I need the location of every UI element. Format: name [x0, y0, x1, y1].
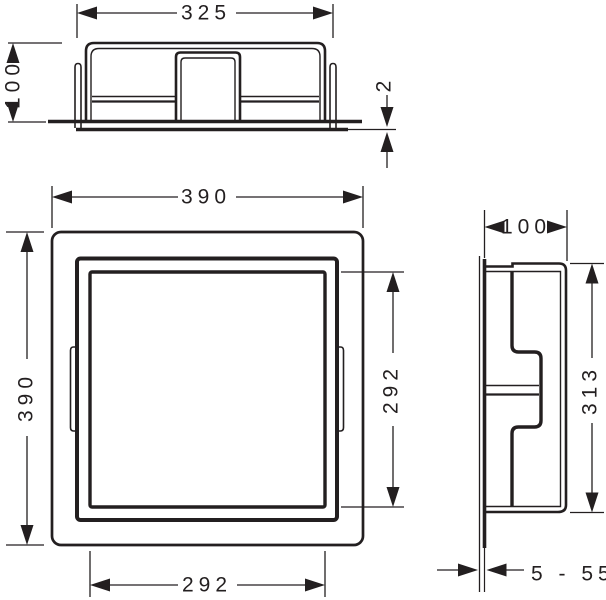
body-outer-outline	[483, 264, 566, 513]
arrow-up-icon	[381, 132, 394, 152]
outer-frame-outline	[52, 232, 363, 545]
body-outer-outline	[86, 43, 325, 121]
inner-frame-outline	[77, 259, 337, 521]
side-view-dim-depth: 100	[485, 210, 568, 261]
side-view-dim-body-height: 313	[570, 264, 604, 513]
front-view-dim-opening-width: 292	[90, 551, 325, 597]
arrow-left-icon	[52, 191, 72, 204]
arrow-down-icon	[586, 493, 599, 513]
front-view-dim-opening-height: 292	[341, 272, 404, 507]
top-view-body	[48, 43, 396, 130]
body-inner-outline	[91, 49, 320, 122]
arrow-left-icon	[77, 7, 97, 20]
dim-label-100: 100	[2, 59, 25, 109]
arrow-right-icon	[343, 191, 363, 204]
arrow-right-icon	[313, 7, 333, 20]
drawing-svg: 325 100	[0, 0, 606, 600]
top-view-dim-depth: 100	[2, 43, 63, 122]
front-view-dim-height: 390	[6, 232, 44, 545]
arrow-down-icon	[381, 107, 394, 127]
front-view: 390 390 292	[6, 186, 404, 598]
dim-label-390-height: 390	[15, 372, 38, 422]
arrow-down-icon	[21, 525, 34, 545]
left-clip	[75, 64, 81, 129]
dim-label-325: 325	[181, 2, 231, 25]
arrow-up-icon	[586, 264, 599, 284]
side-view: 100 313 5 - 55	[437, 210, 606, 592]
interior-step-profile	[512, 272, 541, 507]
dim-label-5-55: 5 - 55	[531, 563, 606, 586]
arrow-left-icon	[90, 579, 110, 592]
front-view-dim-width: 390	[52, 186, 363, 229]
top-view-dim-overall-width: 325	[77, 2, 333, 39]
dim-label-292-height: 292	[380, 364, 403, 414]
arrow-up-icon	[21, 232, 34, 252]
center-tab-outer	[176, 53, 240, 122]
side-view-body	[480, 256, 567, 592]
side-view-dim-adjustment-range: 5 - 55	[437, 563, 606, 586]
arrow-left-icon	[487, 564, 507, 577]
dim-label-100-depth: 100	[501, 216, 551, 239]
dim-label-2: 2	[373, 76, 396, 93]
niche-opening-outline	[90, 272, 325, 507]
top-view-dim-flange-thickness: 2	[373, 76, 396, 168]
center-tab-inner	[181, 58, 235, 121]
top-view: 325 100	[2, 2, 397, 169]
right-clip	[330, 64, 336, 129]
arrow-up-icon	[387, 272, 400, 292]
dim-label-313: 313	[579, 365, 602, 415]
arrow-right-icon	[305, 579, 325, 592]
arrow-down-icon	[387, 487, 400, 507]
technical-dimension-drawing: 325 100	[0, 0, 606, 600]
dim-label-292-width: 292	[182, 574, 232, 597]
body-inner-outline	[486, 272, 561, 507]
front-view-frame	[52, 232, 363, 545]
dim-label-390-width: 390	[181, 186, 231, 209]
arrow-right-icon	[458, 564, 478, 577]
